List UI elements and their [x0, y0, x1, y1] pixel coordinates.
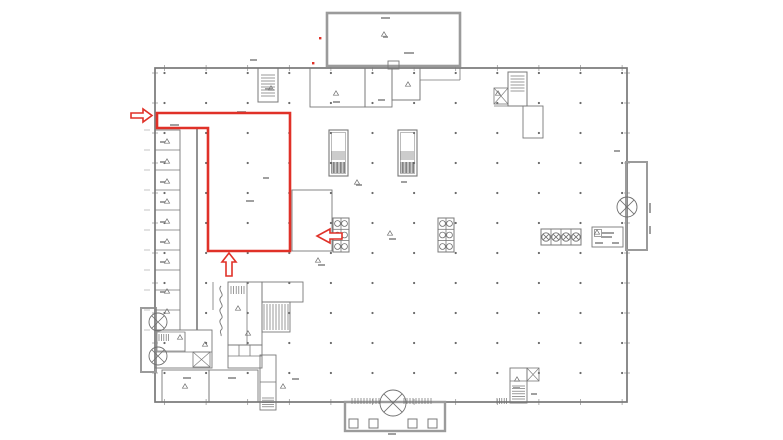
red-arrow-up: [222, 253, 236, 276]
top-right-room: [523, 106, 543, 138]
core-cells: [228, 345, 262, 368]
top-annex: [327, 13, 460, 66]
legend-square: [595, 230, 602, 237]
mid-room: [292, 190, 332, 251]
rack-circles: [335, 221, 453, 250]
dimension-marks: [160, 17, 651, 435]
wall-ticks: [144, 65, 630, 405]
top-room-2: [365, 68, 392, 107]
floor-plan-svg: [0, 0, 783, 440]
walls-and-rooms: [141, 13, 647, 431]
crossed-boxes: [193, 88, 539, 381]
top-left-shaft: [258, 68, 278, 102]
porch-column: [349, 419, 358, 428]
porch-column: [408, 419, 417, 428]
top-room-3: [392, 68, 420, 100]
bottom-right-room: [510, 368, 527, 403]
column-grid-dots: [163, 72, 623, 374]
red-arrow-right: [131, 109, 152, 122]
floor-plan-image: [0, 0, 783, 440]
entrance-porch: [345, 402, 445, 431]
top-right-stair: [508, 72, 527, 106]
bottom-room-1: [162, 370, 209, 402]
porch-column: [369, 419, 378, 428]
bottom-room-2: [209, 370, 258, 402]
break-line: [220, 286, 222, 336]
core-room-b: [262, 282, 303, 302]
porch-column: [428, 419, 437, 428]
